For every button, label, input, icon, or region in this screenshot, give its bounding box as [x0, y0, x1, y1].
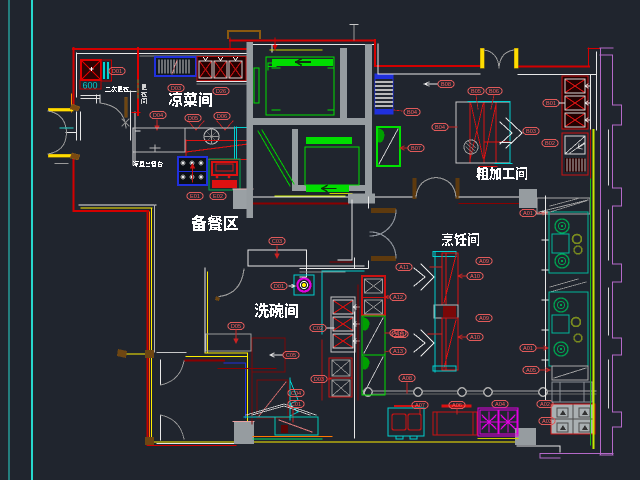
svg-text:B06: B06 — [489, 89, 499, 95]
svg-text:B04: B04 — [435, 125, 445, 131]
svg-text:600: 600 — [82, 81, 97, 91]
svg-text:B02: B02 — [545, 141, 555, 147]
svg-text:B08: B08 — [441, 82, 451, 88]
svg-text:A04: A04 — [495, 402, 505, 408]
svg-text:A09: A09 — [479, 316, 489, 322]
svg-text:A03: A03 — [542, 419, 552, 425]
svg-text:E02: E02 — [213, 194, 223, 200]
svg-text:A10: A10 — [470, 335, 480, 341]
svg-text:D03: D03 — [314, 377, 324, 383]
svg-text:D01: D01 — [112, 69, 122, 75]
svg-text:D26: D26 — [216, 89, 226, 95]
svg-text:A13: A13 — [393, 349, 403, 355]
svg-text:A14: A14 — [393, 331, 403, 337]
svg-text:A05: A05 — [526, 368, 536, 374]
svg-text:B01: B01 — [546, 101, 556, 107]
svg-text:A12: A12 — [393, 295, 403, 301]
svg-text:D03: D03 — [171, 86, 181, 92]
svg-text:A06: A06 — [452, 403, 462, 409]
svg-text:D01: D01 — [274, 284, 284, 290]
svg-text:C03: C03 — [272, 239, 282, 245]
svg-text:A07: A07 — [415, 403, 425, 409]
svg-text:A01: A01 — [523, 346, 533, 352]
svg-text:A08: A08 — [402, 376, 412, 382]
svg-text:B04: B04 — [407, 110, 417, 116]
svg-text:D04: D04 — [153, 113, 163, 119]
svg-text:D06: D06 — [217, 114, 227, 120]
svg-text:E01: E01 — [190, 194, 200, 200]
svg-text:C04: C04 — [291, 391, 301, 397]
svg-text:B07: B07 — [411, 146, 421, 152]
svg-text:B03: B03 — [526, 129, 536, 135]
svg-text:C02: C02 — [313, 326, 323, 332]
svg-text:B05: B05 — [471, 89, 481, 95]
svg-text:A09: A09 — [479, 259, 489, 265]
svg-text:A01: A01 — [523, 211, 533, 217]
svg-text:D05: D05 — [188, 116, 198, 122]
svg-text:C05: C05 — [286, 353, 296, 359]
svg-text:D05: D05 — [231, 324, 241, 330]
svg-text:A02: A02 — [540, 402, 550, 408]
svg-text:A10: A10 — [470, 274, 480, 280]
svg-text:A11: A11 — [399, 265, 409, 271]
svg-text:C01: C01 — [291, 402, 301, 408]
